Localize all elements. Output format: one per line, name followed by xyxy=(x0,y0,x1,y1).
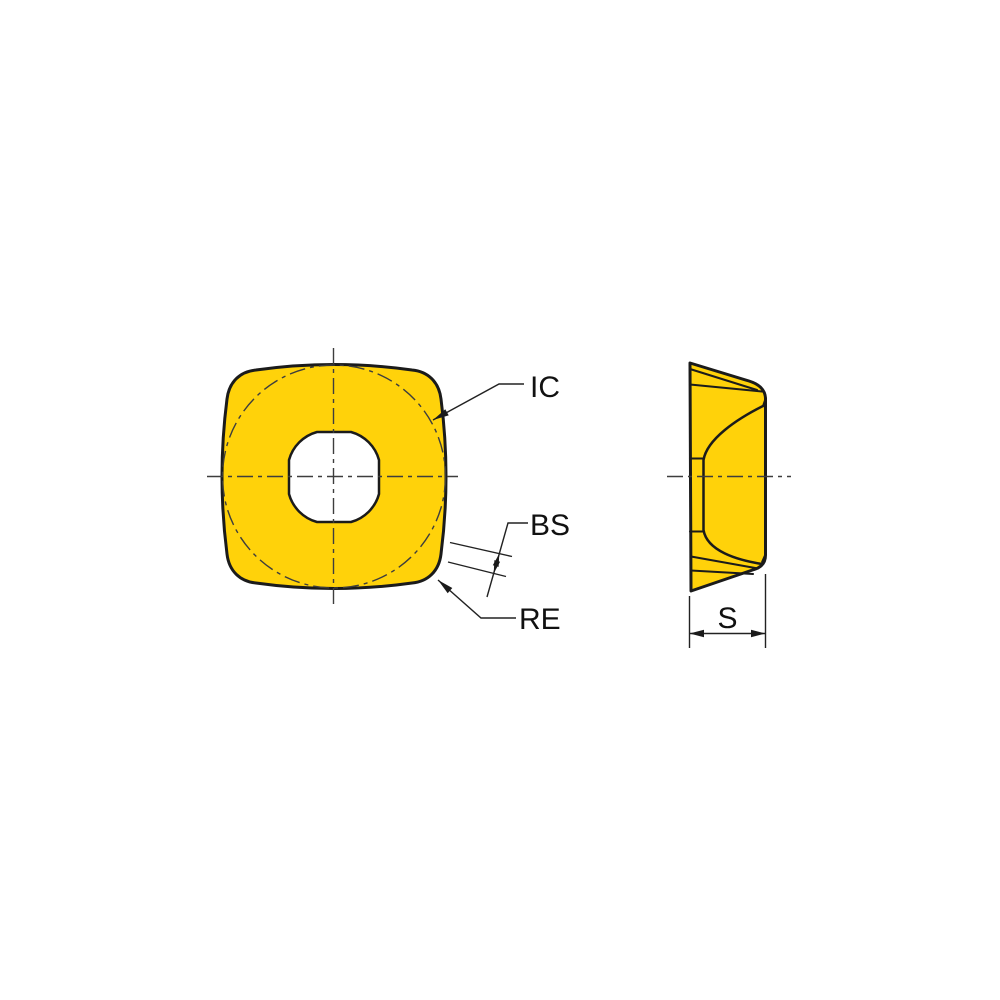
re-callout: RE xyxy=(438,580,561,636)
bs-extension-line-upper xyxy=(450,543,512,557)
insert-top-view xyxy=(207,348,458,607)
re-leader-line xyxy=(438,580,516,618)
insert-dimension-drawing: IC BS RE xyxy=(0,0,1000,1000)
s-arrowhead-right xyxy=(751,630,766,637)
bs-leader-line xyxy=(487,523,528,597)
ic-label: IC xyxy=(530,371,560,404)
s-label: S xyxy=(717,602,737,635)
drawing-area: IC BS RE xyxy=(0,0,1000,1000)
bs-callout: BS xyxy=(448,509,570,597)
bs-label: BS xyxy=(530,509,570,542)
insert-side-view xyxy=(667,363,791,591)
ic-callout: IC xyxy=(433,371,560,420)
s-arrowhead-left xyxy=(690,630,705,637)
re-label: RE xyxy=(519,603,561,636)
bs-arrowhead-lower xyxy=(494,560,500,573)
